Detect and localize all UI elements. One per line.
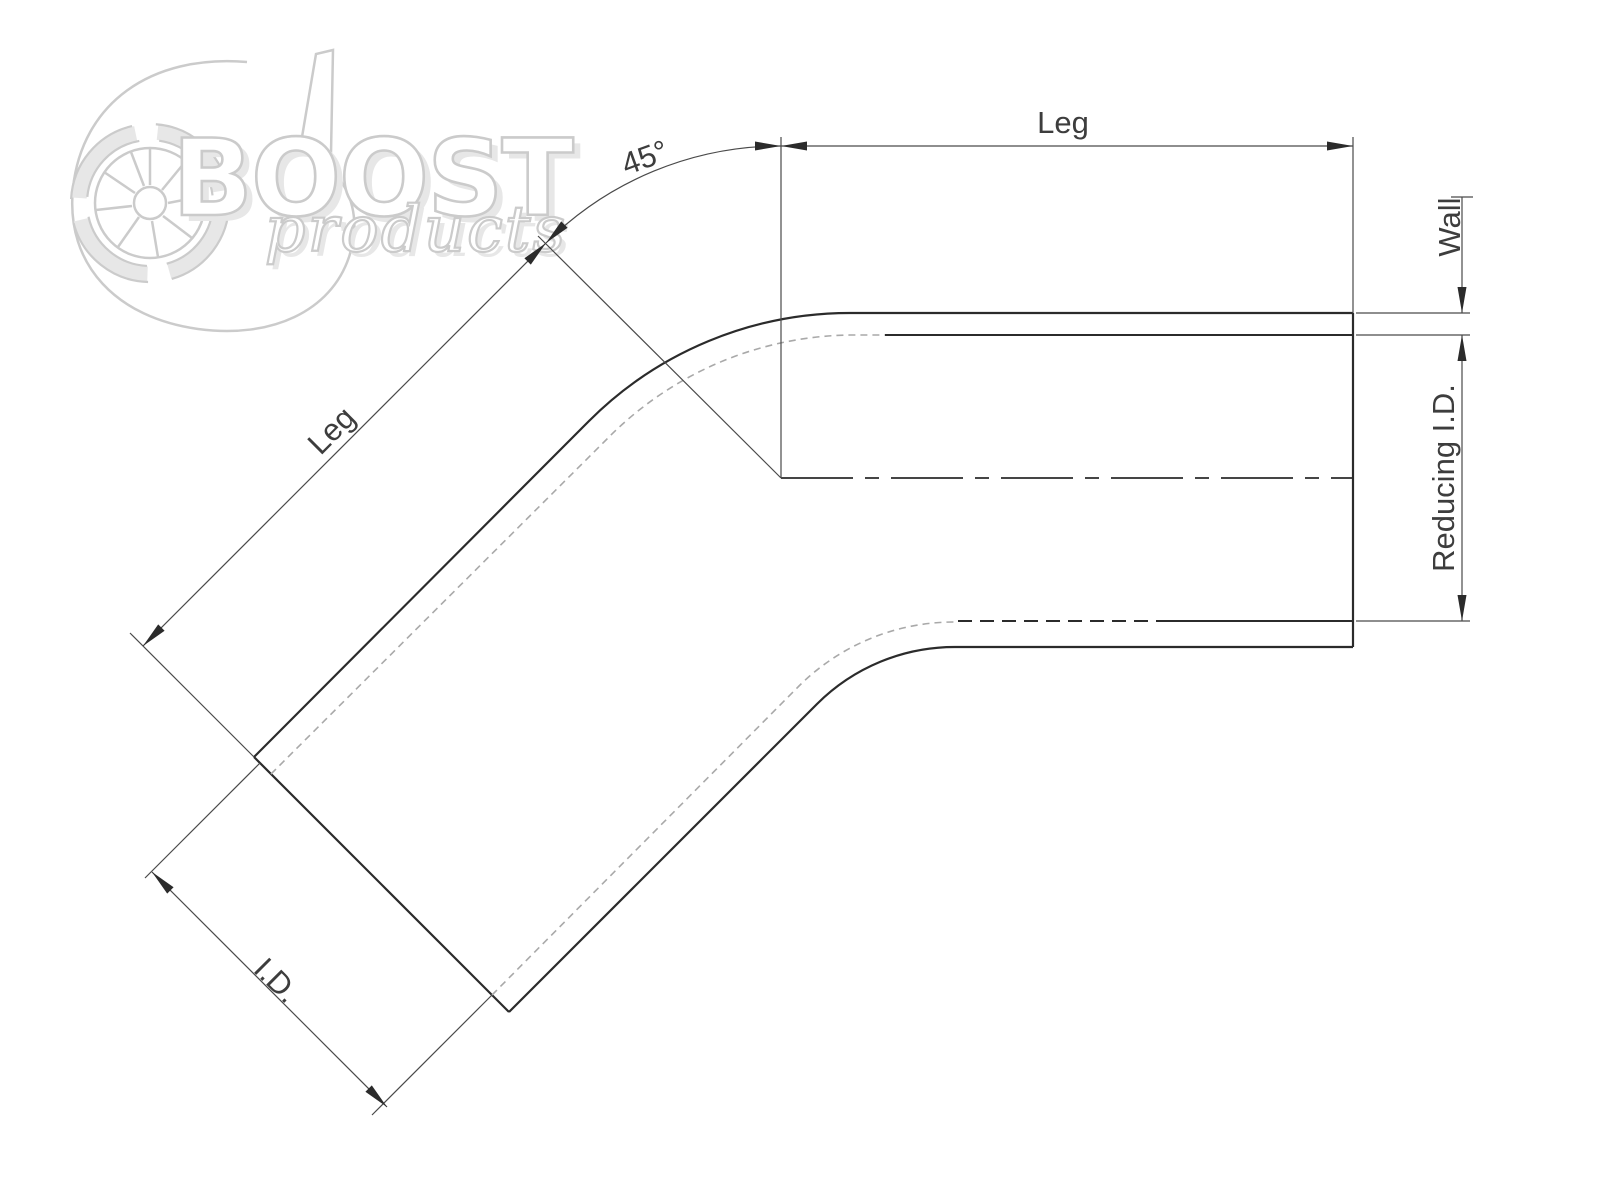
elbow-outer-top-edge	[254, 313, 1353, 757]
leg-top-arrow-left	[781, 142, 807, 151]
elbow-body	[254, 313, 1353, 1012]
id-label: I.D.	[247, 951, 306, 1010]
leg-diagonal-dimension-line	[143, 243, 546, 646]
reducing-id-label: Reducing I.D.	[1426, 384, 1461, 572]
elbow-outer-bottom-edge	[509, 647, 1353, 1012]
leg-diagonal-arrow-lower	[143, 624, 165, 646]
angle-reference-line	[538, 236, 781, 478]
boost-products-logo: BOOST BOOST products products	[71, 50, 581, 331]
large-end-face-extension-line	[130, 633, 254, 757]
logo-sub-text: products	[265, 193, 568, 267]
leg-diagonal-label: Leg	[301, 400, 362, 461]
reducing-id-arrow-up	[1458, 335, 1467, 361]
leg-top-arrow-right	[1327, 142, 1353, 151]
id-extension-line-top	[145, 763, 260, 878]
leg-top-label: Leg	[1037, 105, 1089, 140]
inner-wall-top-hidden	[271, 335, 888, 774]
elbow-drawing-canvas: BOOST BOOST products products	[0, 0, 1600, 1200]
angle-label: 45°	[617, 133, 673, 182]
angle-arc-arrow-top	[755, 142, 781, 151]
id-arrow-bottom	[365, 1085, 387, 1107]
technical-drawing-page: BOOST BOOST products products	[0, 0, 1600, 1200]
id-extension-line-bottom	[372, 995, 492, 1115]
wall-arrow-down	[1458, 287, 1467, 313]
dimension-arrowheads	[143, 142, 1467, 1108]
inner-wall-bottom-hidden	[492, 622, 955, 995]
wall-label: Wall	[1432, 197, 1467, 256]
reducing-id-arrow-down	[1458, 595, 1467, 621]
id-arrow-top	[152, 872, 174, 894]
